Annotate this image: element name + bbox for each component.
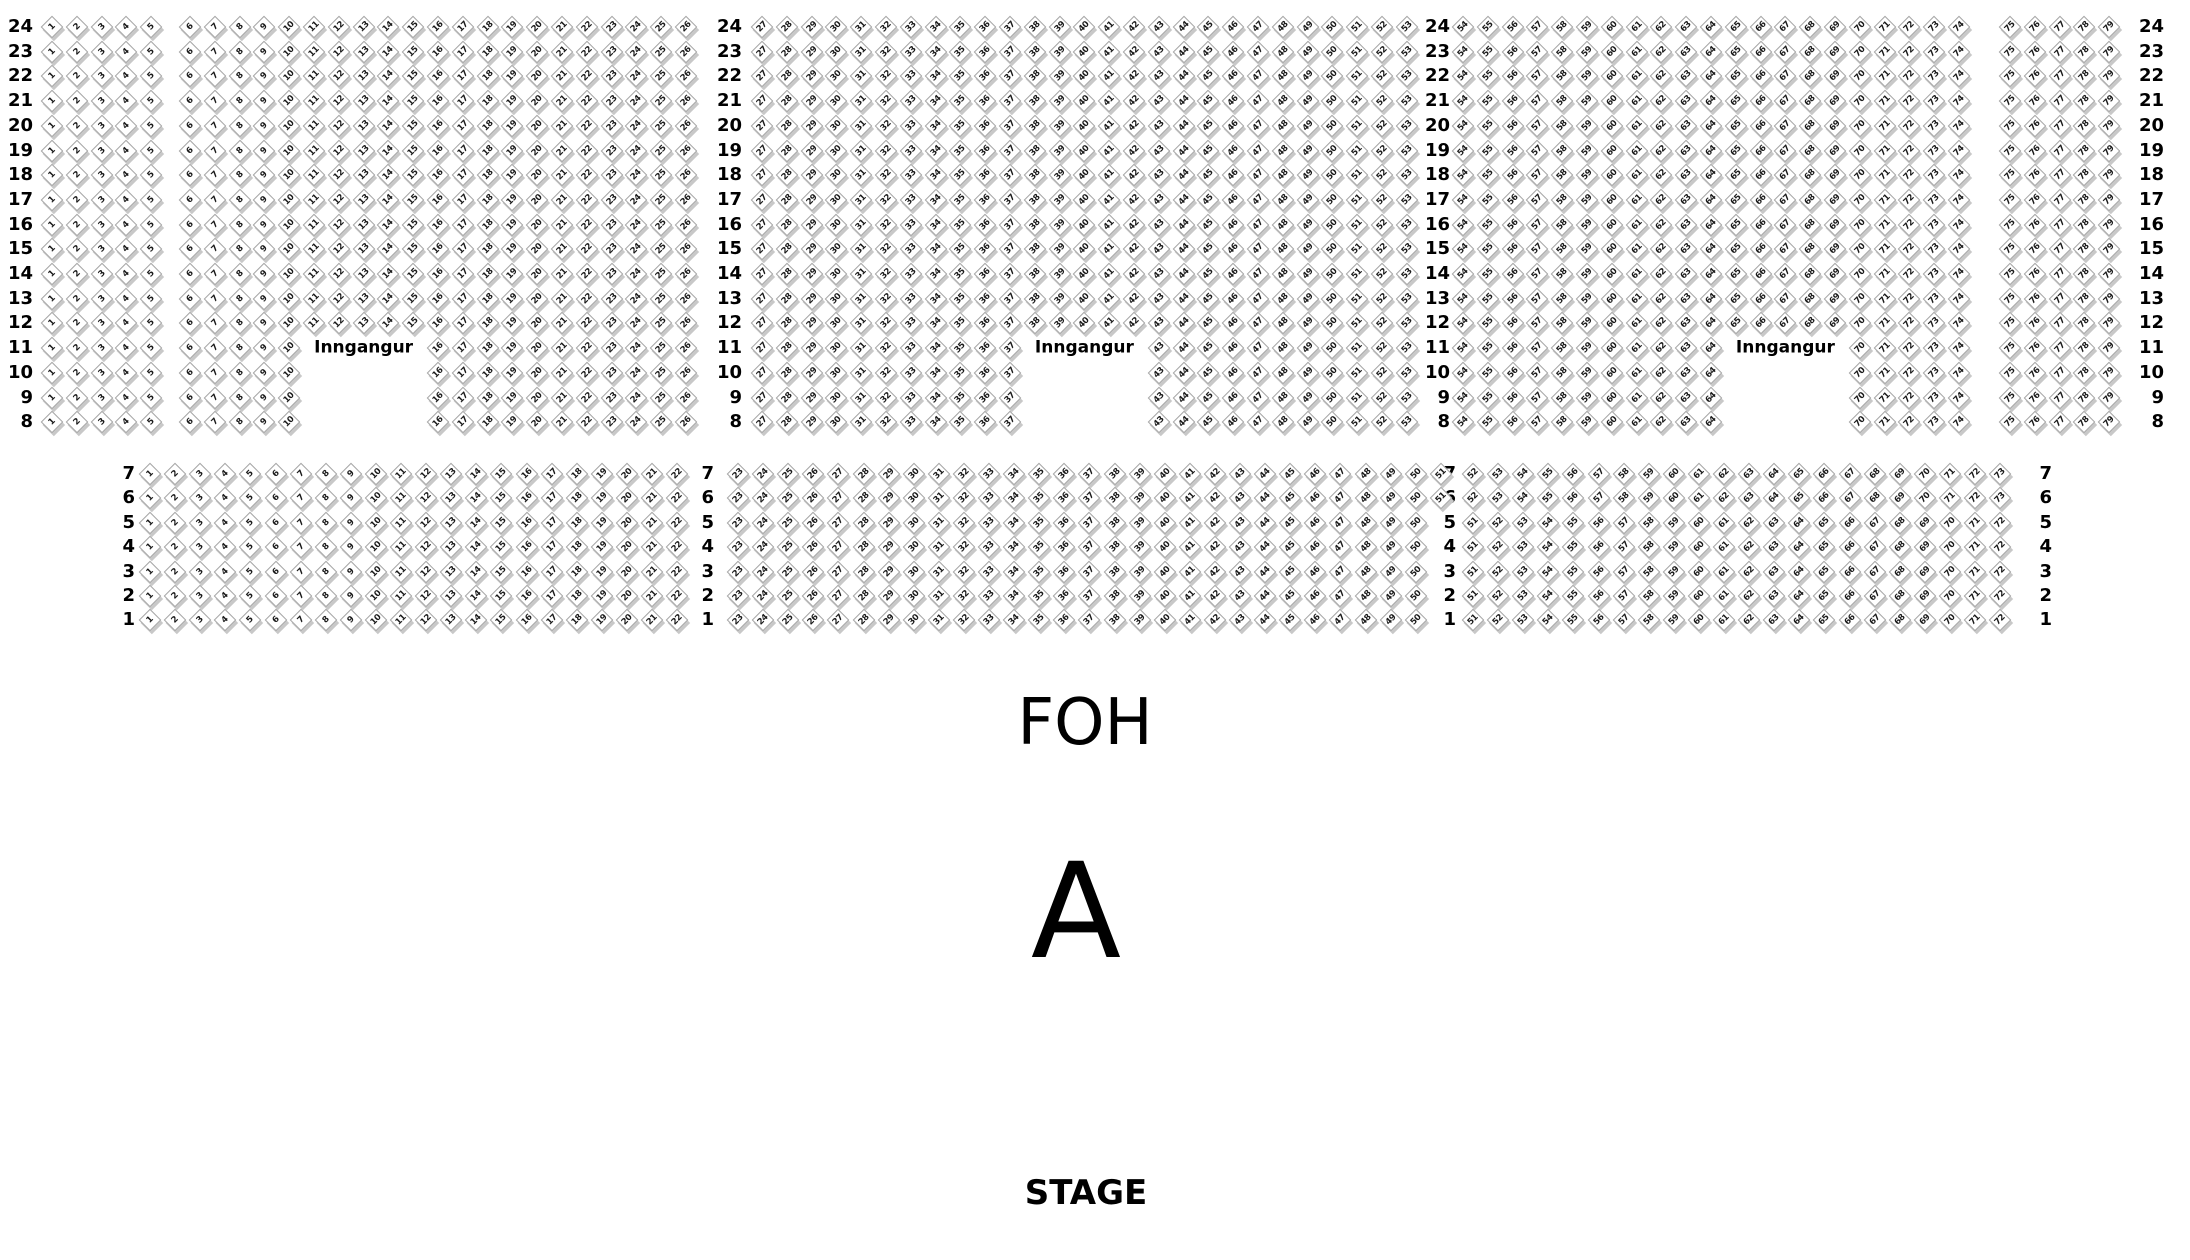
seat[interactable]: 29 bbox=[877, 560, 900, 583]
seat[interactable]: 35 bbox=[949, 411, 972, 434]
seat[interactable]: 56 bbox=[1562, 463, 1585, 486]
seat[interactable]: 58 bbox=[1551, 164, 1574, 187]
seat[interactable]: 60 bbox=[1600, 40, 1623, 63]
seat[interactable]: 63 bbox=[1763, 585, 1786, 608]
seat[interactable]: 66 bbox=[1749, 312, 1772, 335]
seat[interactable]: 51 bbox=[1346, 263, 1369, 286]
seat[interactable]: 66 bbox=[1749, 238, 1772, 261]
seat[interactable]: 43 bbox=[1229, 463, 1252, 486]
seat[interactable]: 31 bbox=[850, 386, 873, 409]
seat[interactable]: 58 bbox=[1551, 65, 1574, 88]
seat[interactable]: 21 bbox=[551, 213, 574, 236]
seat[interactable]: 72 bbox=[1898, 139, 1921, 162]
seat[interactable]: 16 bbox=[427, 386, 450, 409]
seat[interactable]: 39 bbox=[1128, 560, 1151, 583]
seat[interactable]: 12 bbox=[415, 463, 438, 486]
seat[interactable]: 37 bbox=[1078, 463, 1101, 486]
seat[interactable]: 69 bbox=[1913, 585, 1936, 608]
seat[interactable]: 6 bbox=[179, 16, 202, 39]
seat[interactable]: 50 bbox=[1321, 213, 1344, 236]
seat[interactable]: 19 bbox=[501, 361, 524, 384]
seat[interactable]: 27 bbox=[827, 511, 850, 534]
seat[interactable]: 37 bbox=[999, 337, 1022, 360]
seat[interactable]: 78 bbox=[2073, 263, 2096, 286]
seat[interactable]: 22 bbox=[575, 164, 598, 187]
seat[interactable]: 48 bbox=[1354, 609, 1377, 632]
seat[interactable]: 17 bbox=[540, 463, 563, 486]
seat[interactable]: 3 bbox=[90, 164, 113, 187]
seat[interactable]: 65 bbox=[1813, 609, 1836, 632]
seat[interactable]: 64 bbox=[1700, 139, 1723, 162]
seat[interactable]: 1 bbox=[41, 213, 64, 236]
seat[interactable]: 42 bbox=[1123, 287, 1146, 310]
seat[interactable]: 78 bbox=[2073, 114, 2096, 137]
seat[interactable]: 66 bbox=[1749, 213, 1772, 236]
seat[interactable]: 53 bbox=[1512, 511, 1535, 534]
seat[interactable]: 5 bbox=[140, 40, 163, 63]
seat[interactable]: 40 bbox=[1153, 560, 1176, 583]
seat[interactable]: 48 bbox=[1271, 65, 1294, 88]
seat[interactable]: 66 bbox=[1749, 90, 1772, 113]
seat[interactable]: 51 bbox=[1462, 511, 1485, 534]
seat[interactable]: 3 bbox=[90, 139, 113, 162]
seat[interactable]: 3 bbox=[90, 312, 113, 335]
seat[interactable]: 31 bbox=[850, 90, 873, 113]
seat[interactable]: 18 bbox=[476, 114, 499, 137]
seat[interactable]: 46 bbox=[1304, 511, 1327, 534]
seat[interactable]: 57 bbox=[1526, 90, 1549, 113]
seat[interactable]: 30 bbox=[825, 40, 848, 63]
seat[interactable]: 61 bbox=[1625, 164, 1648, 187]
seat[interactable]: 18 bbox=[476, 386, 499, 409]
seat[interactable]: 1 bbox=[139, 487, 162, 510]
seat[interactable]: 2 bbox=[65, 411, 88, 434]
seat[interactable]: 20 bbox=[616, 487, 639, 510]
seat[interactable]: 14 bbox=[465, 463, 488, 486]
seat[interactable]: 25 bbox=[777, 585, 800, 608]
seat[interactable]: 38 bbox=[1023, 90, 1046, 113]
seat[interactable]: 17 bbox=[451, 139, 474, 162]
seat[interactable]: 32 bbox=[875, 189, 898, 212]
seat[interactable]: 36 bbox=[974, 386, 997, 409]
seat[interactable]: 2 bbox=[65, 361, 88, 384]
seat[interactable]: 36 bbox=[1053, 560, 1076, 583]
seat[interactable]: 60 bbox=[1688, 536, 1711, 559]
seat[interactable]: 64 bbox=[1700, 287, 1723, 310]
seat[interactable]: 42 bbox=[1123, 90, 1146, 113]
seat[interactable]: 50 bbox=[1321, 114, 1344, 137]
seat[interactable]: 41 bbox=[1098, 40, 1121, 63]
seat[interactable]: 15 bbox=[402, 238, 425, 261]
seat[interactable]: 42 bbox=[1123, 238, 1146, 261]
seat[interactable]: 3 bbox=[90, 16, 113, 39]
seat[interactable]: 59 bbox=[1662, 536, 1685, 559]
seat[interactable]: 37 bbox=[1078, 609, 1101, 632]
seat[interactable]: 71 bbox=[1873, 287, 1896, 310]
seat[interactable]: 6 bbox=[179, 213, 202, 236]
seat[interactable]: 12 bbox=[327, 213, 350, 236]
seat[interactable]: 26 bbox=[675, 337, 698, 360]
seat[interactable]: 71 bbox=[1873, 263, 1896, 286]
seat[interactable]: 68 bbox=[1863, 487, 1886, 510]
seat[interactable]: 34 bbox=[924, 337, 947, 360]
seat[interactable]: 35 bbox=[1028, 585, 1051, 608]
seat[interactable]: 72 bbox=[1964, 463, 1987, 486]
seat[interactable]: 74 bbox=[1948, 164, 1971, 187]
seat[interactable]: 79 bbox=[2098, 90, 2121, 113]
seat[interactable]: 30 bbox=[902, 463, 925, 486]
seat[interactable]: 47 bbox=[1247, 287, 1270, 310]
seat[interactable]: 56 bbox=[1587, 511, 1610, 534]
seat[interactable]: 42 bbox=[1123, 40, 1146, 63]
seat[interactable]: 77 bbox=[2048, 287, 2071, 310]
seat[interactable]: 28 bbox=[852, 560, 875, 583]
seat[interactable]: 56 bbox=[1501, 213, 1524, 236]
seat[interactable]: 64 bbox=[1788, 536, 1811, 559]
seat[interactable]: 47 bbox=[1247, 361, 1270, 384]
seat[interactable]: 73 bbox=[1923, 16, 1946, 39]
seat[interactable]: 22 bbox=[666, 536, 689, 559]
seat[interactable]: 15 bbox=[402, 16, 425, 39]
seat[interactable]: 62 bbox=[1650, 139, 1673, 162]
seat[interactable]: 27 bbox=[751, 386, 774, 409]
seat[interactable]: 75 bbox=[1999, 263, 2022, 286]
seat[interactable]: 18 bbox=[565, 536, 588, 559]
seat[interactable]: 78 bbox=[2073, 361, 2096, 384]
seat[interactable]: 77 bbox=[2048, 164, 2071, 187]
seat[interactable]: 71 bbox=[1873, 164, 1896, 187]
seat[interactable]: 48 bbox=[1271, 114, 1294, 137]
seat[interactable]: 49 bbox=[1296, 238, 1319, 261]
seat[interactable]: 9 bbox=[253, 65, 276, 88]
seat[interactable]: 9 bbox=[253, 189, 276, 212]
seat[interactable]: 76 bbox=[2023, 65, 2046, 88]
seat[interactable]: 45 bbox=[1279, 536, 1302, 559]
seat[interactable]: 28 bbox=[775, 312, 798, 335]
seat[interactable]: 15 bbox=[402, 114, 425, 137]
seat[interactable]: 34 bbox=[924, 287, 947, 310]
seat[interactable]: 42 bbox=[1204, 585, 1227, 608]
seat[interactable]: 29 bbox=[877, 463, 900, 486]
seat[interactable]: 15 bbox=[402, 65, 425, 88]
seat[interactable]: 24 bbox=[752, 609, 775, 632]
seat[interactable]: 12 bbox=[327, 312, 350, 335]
seat[interactable]: 36 bbox=[974, 65, 997, 88]
seat[interactable]: 35 bbox=[1028, 487, 1051, 510]
seat[interactable]: 42 bbox=[1123, 65, 1146, 88]
seat[interactable]: 31 bbox=[850, 164, 873, 187]
seat[interactable]: 57 bbox=[1526, 114, 1549, 137]
seat[interactable]: 71 bbox=[1873, 312, 1896, 335]
seat[interactable]: 75 bbox=[1999, 16, 2022, 39]
seat[interactable]: 40 bbox=[1073, 65, 1096, 88]
seat[interactable]: 40 bbox=[1073, 263, 1096, 286]
seat[interactable]: 74 bbox=[1948, 90, 1971, 113]
seat[interactable]: 23 bbox=[600, 287, 623, 310]
seat[interactable]: 30 bbox=[825, 361, 848, 384]
seat[interactable]: 27 bbox=[751, 213, 774, 236]
seat[interactable]: 20 bbox=[526, 312, 549, 335]
seat[interactable]: 52 bbox=[1371, 65, 1394, 88]
seat[interactable]: 29 bbox=[800, 386, 823, 409]
seat[interactable]: 30 bbox=[825, 238, 848, 261]
seat[interactable]: 62 bbox=[1650, 263, 1673, 286]
seat[interactable]: 52 bbox=[1487, 609, 1510, 632]
seat[interactable]: 29 bbox=[800, 213, 823, 236]
seat[interactable]: 1 bbox=[139, 511, 162, 534]
seat[interactable]: 63 bbox=[1675, 114, 1698, 137]
seat[interactable]: 15 bbox=[402, 312, 425, 335]
seat[interactable]: 33 bbox=[899, 164, 922, 187]
seat[interactable]: 55 bbox=[1476, 287, 1499, 310]
seat[interactable]: 2 bbox=[65, 114, 88, 137]
seat[interactable]: 57 bbox=[1526, 411, 1549, 434]
seat[interactable]: 36 bbox=[974, 16, 997, 39]
seat[interactable]: 10 bbox=[365, 511, 388, 534]
seat[interactable]: 72 bbox=[1898, 189, 1921, 212]
seat[interactable]: 33 bbox=[899, 139, 922, 162]
seat[interactable]: 47 bbox=[1247, 189, 1270, 212]
seat[interactable]: 20 bbox=[526, 386, 549, 409]
seat[interactable]: 29 bbox=[877, 609, 900, 632]
seat[interactable]: 31 bbox=[850, 238, 873, 261]
seat[interactable]: 67 bbox=[1863, 511, 1886, 534]
seat[interactable]: 9 bbox=[253, 90, 276, 113]
seat[interactable]: 17 bbox=[540, 560, 563, 583]
seat[interactable]: 59 bbox=[1576, 139, 1599, 162]
seat[interactable]: 48 bbox=[1271, 337, 1294, 360]
seat[interactable]: 51 bbox=[1346, 361, 1369, 384]
seat[interactable]: 51 bbox=[1462, 609, 1485, 632]
seat[interactable]: 42 bbox=[1204, 560, 1227, 583]
seat[interactable]: 15 bbox=[402, 287, 425, 310]
seat[interactable]: 9 bbox=[253, 238, 276, 261]
seat[interactable]: 60 bbox=[1600, 139, 1623, 162]
seat[interactable]: 49 bbox=[1296, 312, 1319, 335]
seat[interactable]: 47 bbox=[1247, 263, 1270, 286]
seat[interactable]: 10 bbox=[365, 560, 388, 583]
seat[interactable]: 69 bbox=[1824, 238, 1847, 261]
seat[interactable]: 5 bbox=[140, 312, 163, 335]
seat[interactable]: 34 bbox=[1003, 463, 1026, 486]
seat[interactable]: 72 bbox=[1989, 585, 2012, 608]
seat[interactable]: 7 bbox=[203, 337, 226, 360]
seat[interactable]: 4 bbox=[115, 90, 138, 113]
seat[interactable]: 60 bbox=[1600, 164, 1623, 187]
seat[interactable]: 61 bbox=[1713, 609, 1736, 632]
seat[interactable]: 61 bbox=[1713, 560, 1736, 583]
seat[interactable]: 37 bbox=[1078, 536, 1101, 559]
seat[interactable]: 39 bbox=[1128, 609, 1151, 632]
seat[interactable]: 18 bbox=[476, 40, 499, 63]
seat[interactable]: 10 bbox=[278, 411, 301, 434]
seat[interactable]: 7 bbox=[289, 463, 312, 486]
seat[interactable]: 70 bbox=[1848, 114, 1871, 137]
seat[interactable]: 11 bbox=[303, 287, 326, 310]
seat[interactable]: 11 bbox=[390, 463, 413, 486]
seat[interactable]: 79 bbox=[2098, 263, 2121, 286]
seat[interactable]: 63 bbox=[1675, 386, 1698, 409]
seat[interactable]: 22 bbox=[575, 139, 598, 162]
seat[interactable]: 73 bbox=[1923, 65, 1946, 88]
seat[interactable]: 35 bbox=[949, 287, 972, 310]
seat[interactable]: 2 bbox=[65, 189, 88, 212]
seat[interactable]: 6 bbox=[264, 560, 287, 583]
seat[interactable]: 38 bbox=[1023, 164, 1046, 187]
seat[interactable]: 20 bbox=[526, 411, 549, 434]
seat[interactable]: 8 bbox=[228, 238, 251, 261]
seat[interactable]: 62 bbox=[1738, 536, 1761, 559]
seat[interactable]: 56 bbox=[1501, 90, 1524, 113]
seat[interactable]: 33 bbox=[899, 361, 922, 384]
seat[interactable]: 28 bbox=[775, 189, 798, 212]
seat[interactable]: 17 bbox=[451, 337, 474, 360]
seat[interactable]: 4 bbox=[115, 40, 138, 63]
seat[interactable]: 61 bbox=[1625, 213, 1648, 236]
seat[interactable]: 26 bbox=[675, 189, 698, 212]
seat[interactable]: 79 bbox=[2098, 114, 2121, 137]
seat[interactable]: 35 bbox=[1028, 511, 1051, 534]
seat[interactable]: 26 bbox=[675, 90, 698, 113]
seat[interactable]: 28 bbox=[775, 337, 798, 360]
seat[interactable]: 65 bbox=[1724, 90, 1747, 113]
seat[interactable]: 56 bbox=[1501, 139, 1524, 162]
seat[interactable]: 68 bbox=[1888, 560, 1911, 583]
seat[interactable]: 52 bbox=[1371, 238, 1394, 261]
seat[interactable]: 47 bbox=[1329, 487, 1352, 510]
seat[interactable]: 76 bbox=[2023, 337, 2046, 360]
seat[interactable]: 72 bbox=[1989, 609, 2012, 632]
seat[interactable]: 54 bbox=[1452, 411, 1475, 434]
seat[interactable]: 74 bbox=[1948, 65, 1971, 88]
seat[interactable]: 11 bbox=[303, 16, 326, 39]
seat[interactable]: 16 bbox=[427, 337, 450, 360]
seat[interactable]: 25 bbox=[650, 238, 673, 261]
seat[interactable]: 20 bbox=[526, 287, 549, 310]
seat[interactable]: 29 bbox=[800, 90, 823, 113]
seat[interactable]: 5 bbox=[140, 189, 163, 212]
seat[interactable]: 25 bbox=[777, 463, 800, 486]
seat[interactable]: 19 bbox=[501, 312, 524, 335]
seat[interactable]: 74 bbox=[1948, 411, 1971, 434]
seat[interactable]: 2 bbox=[164, 560, 187, 583]
seat[interactable]: 57 bbox=[1526, 238, 1549, 261]
seat[interactable]: 45 bbox=[1197, 16, 1220, 39]
seat[interactable]: 36 bbox=[974, 411, 997, 434]
seat[interactable]: 58 bbox=[1551, 189, 1574, 212]
seat[interactable]: 21 bbox=[641, 536, 664, 559]
seat[interactable]: 32 bbox=[875, 90, 898, 113]
seat[interactable]: 34 bbox=[924, 213, 947, 236]
seat[interactable]: 68 bbox=[1863, 463, 1886, 486]
seat[interactable]: 36 bbox=[974, 263, 997, 286]
seat[interactable]: 4 bbox=[115, 189, 138, 212]
seat[interactable]: 27 bbox=[827, 487, 850, 510]
seat[interactable]: 28 bbox=[775, 164, 798, 187]
seat[interactable]: 12 bbox=[327, 16, 350, 39]
seat[interactable]: 62 bbox=[1650, 287, 1673, 310]
seat[interactable]: 77 bbox=[2048, 337, 2071, 360]
seat[interactable]: 52 bbox=[1371, 386, 1394, 409]
seat[interactable]: 26 bbox=[675, 238, 698, 261]
seat[interactable]: 19 bbox=[501, 337, 524, 360]
seat[interactable]: 46 bbox=[1222, 238, 1245, 261]
seat[interactable]: 71 bbox=[1964, 609, 1987, 632]
seat[interactable]: 73 bbox=[1923, 213, 1946, 236]
seat[interactable]: 26 bbox=[802, 463, 825, 486]
seat[interactable]: 13 bbox=[352, 114, 375, 137]
seat[interactable]: 37 bbox=[999, 411, 1022, 434]
seat[interactable]: 36 bbox=[974, 139, 997, 162]
seat[interactable]: 25 bbox=[650, 411, 673, 434]
seat[interactable]: 28 bbox=[775, 139, 798, 162]
seat[interactable]: 4 bbox=[115, 65, 138, 88]
seat[interactable]: 28 bbox=[775, 411, 798, 434]
seat[interactable]: 57 bbox=[1587, 487, 1610, 510]
seat[interactable]: 29 bbox=[877, 585, 900, 608]
seat[interactable]: 35 bbox=[949, 65, 972, 88]
seat[interactable]: 7 bbox=[203, 114, 226, 137]
seat[interactable]: 13 bbox=[352, 139, 375, 162]
seat[interactable]: 65 bbox=[1724, 16, 1747, 39]
seat[interactable]: 39 bbox=[1128, 585, 1151, 608]
seat[interactable]: 57 bbox=[1526, 312, 1549, 335]
seat[interactable]: 34 bbox=[924, 386, 947, 409]
seat[interactable]: 37 bbox=[999, 213, 1022, 236]
seat[interactable]: 3 bbox=[189, 560, 212, 583]
seat[interactable]: 59 bbox=[1576, 114, 1599, 137]
seat[interactable]: 12 bbox=[327, 238, 350, 261]
seat[interactable]: 78 bbox=[2073, 238, 2096, 261]
seat[interactable]: 3 bbox=[90, 90, 113, 113]
seat[interactable]: 10 bbox=[278, 287, 301, 310]
seat[interactable]: 51 bbox=[1346, 189, 1369, 212]
seat[interactable]: 47 bbox=[1247, 386, 1270, 409]
seat[interactable]: 71 bbox=[1873, 213, 1896, 236]
seat[interactable]: 43 bbox=[1147, 263, 1170, 286]
seat[interactable]: 63 bbox=[1675, 312, 1698, 335]
seat[interactable]: 4 bbox=[115, 411, 138, 434]
seat[interactable]: 27 bbox=[751, 164, 774, 187]
seat[interactable]: 13 bbox=[352, 312, 375, 335]
seat[interactable]: 59 bbox=[1576, 263, 1599, 286]
seat[interactable]: 70 bbox=[1848, 238, 1871, 261]
seat[interactable]: 70 bbox=[1913, 487, 1936, 510]
seat[interactable]: 10 bbox=[365, 487, 388, 510]
seat[interactable]: 9 bbox=[253, 164, 276, 187]
seat[interactable]: 56 bbox=[1501, 411, 1524, 434]
seat[interactable]: 79 bbox=[2098, 40, 2121, 63]
seat[interactable]: 17 bbox=[451, 411, 474, 434]
seat[interactable]: 36 bbox=[974, 213, 997, 236]
seat[interactable]: 48 bbox=[1354, 560, 1377, 583]
seat[interactable]: 33 bbox=[978, 609, 1001, 632]
seat[interactable]: 75 bbox=[1999, 337, 2022, 360]
seat[interactable]: 50 bbox=[1321, 65, 1344, 88]
seat[interactable]: 37 bbox=[999, 263, 1022, 286]
seat[interactable]: 54 bbox=[1537, 585, 1560, 608]
seat[interactable]: 50 bbox=[1321, 411, 1344, 434]
seat[interactable]: 9 bbox=[253, 337, 276, 360]
seat[interactable]: 17 bbox=[451, 361, 474, 384]
seat[interactable]: 20 bbox=[616, 536, 639, 559]
seat[interactable]: 19 bbox=[501, 90, 524, 113]
seat[interactable]: 18 bbox=[476, 65, 499, 88]
seat[interactable]: 1 bbox=[139, 609, 162, 632]
seat[interactable]: 23 bbox=[600, 114, 623, 137]
seat[interactable]: 52 bbox=[1487, 560, 1510, 583]
seat[interactable]: 42 bbox=[1123, 189, 1146, 212]
